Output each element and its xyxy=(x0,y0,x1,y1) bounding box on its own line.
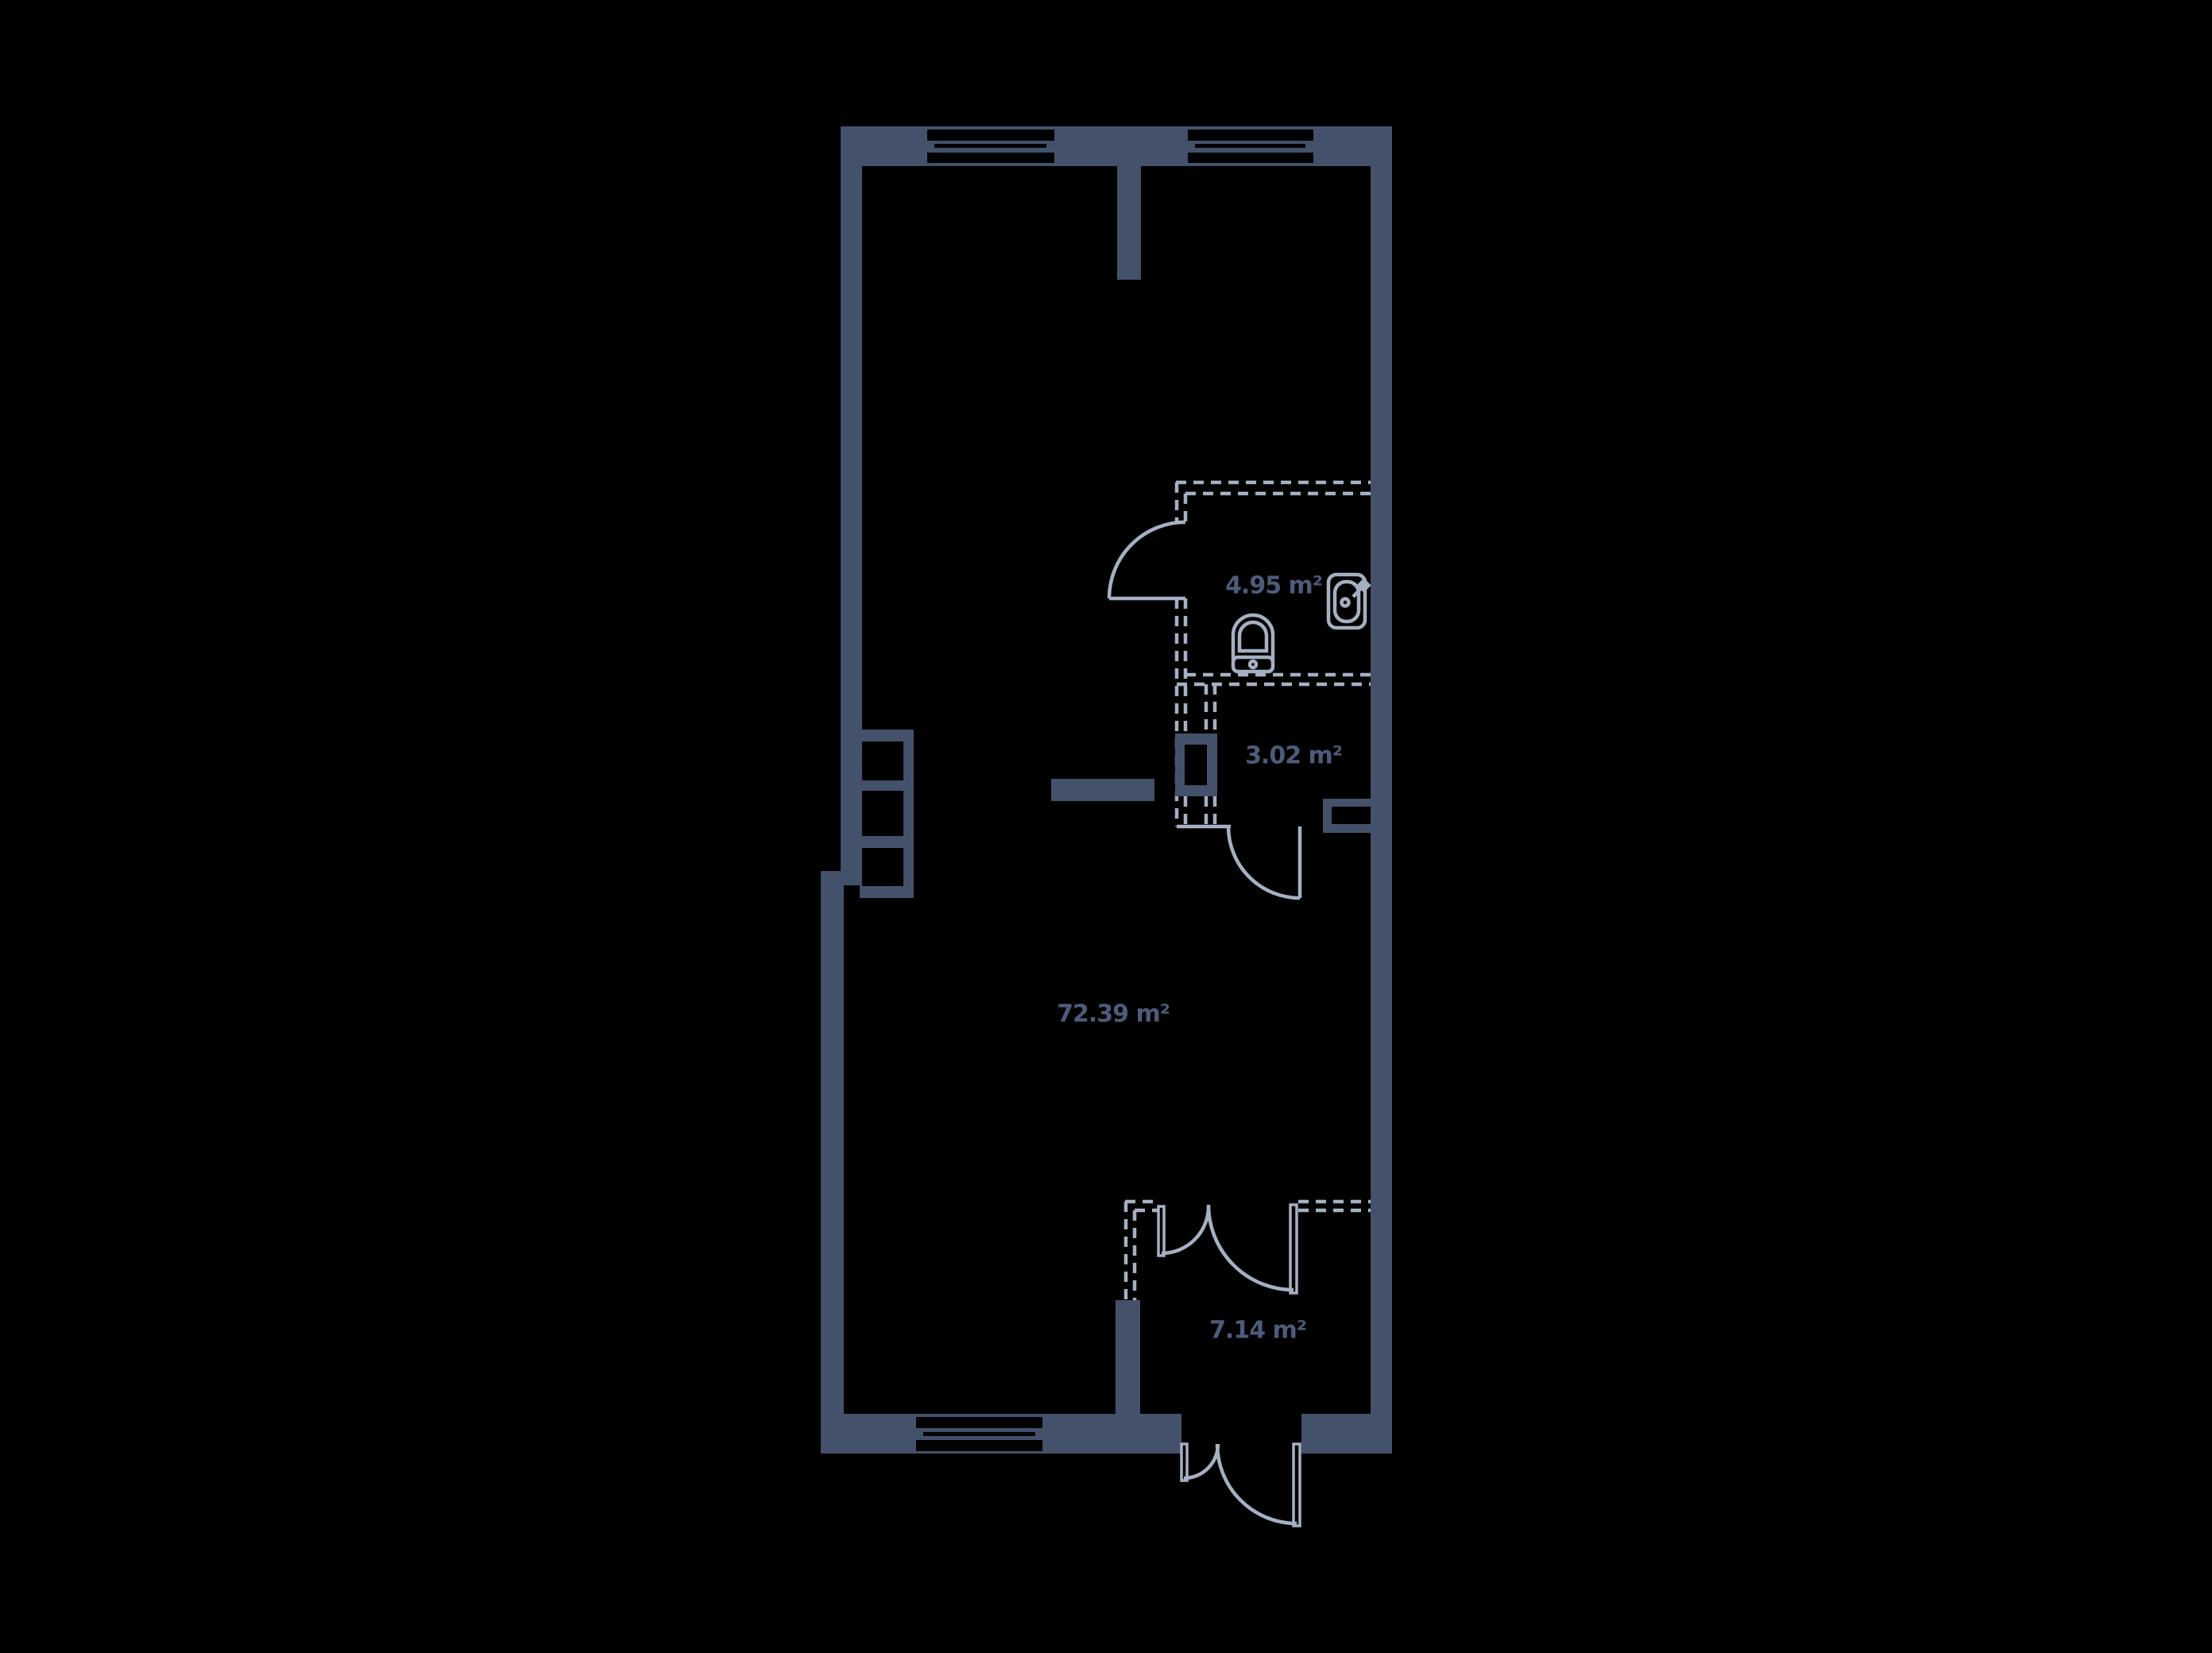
window-top-left xyxy=(927,130,1054,163)
hallway-partition-solid xyxy=(1116,1300,1140,1414)
floor-plan-drawing xyxy=(0,0,2212,1653)
left-wall-step xyxy=(821,871,862,885)
bottom-wall-right xyxy=(1301,1414,1392,1454)
window-top-right xyxy=(1188,130,1313,163)
toilet-icon xyxy=(1233,615,1273,672)
left-wall-upper xyxy=(841,126,862,871)
window-bottom xyxy=(916,1417,1042,1451)
wardrobe-unit xyxy=(860,730,914,898)
living-room-area-label: 72.39 m² xyxy=(1057,1001,1170,1028)
kitchen-separator-wall xyxy=(1051,779,1154,801)
bathroom-door xyxy=(1109,522,1185,598)
hallway-double-door xyxy=(1158,1205,1297,1293)
left-wall-lower xyxy=(821,885,844,1454)
top-center-wall-stub xyxy=(1117,165,1141,280)
bathroom-area-label: 4.95 m² xyxy=(1225,572,1322,600)
wall-niche-hole xyxy=(1332,807,1371,824)
right-wall xyxy=(1371,126,1392,1454)
floor-plan-canvas: 72.39 m² 4.95 m² 3.02 m² 7.14 m² xyxy=(0,0,2212,1653)
sink-icon xyxy=(1328,575,1371,628)
entrance-door xyxy=(1181,1444,1300,1526)
hallway-area-label: 7.14 m² xyxy=(1209,1317,1306,1345)
duct-shaft-hole xyxy=(1185,745,1207,785)
wc-door xyxy=(1228,826,1300,898)
wc-area-label: 3.02 m² xyxy=(1245,742,1342,770)
